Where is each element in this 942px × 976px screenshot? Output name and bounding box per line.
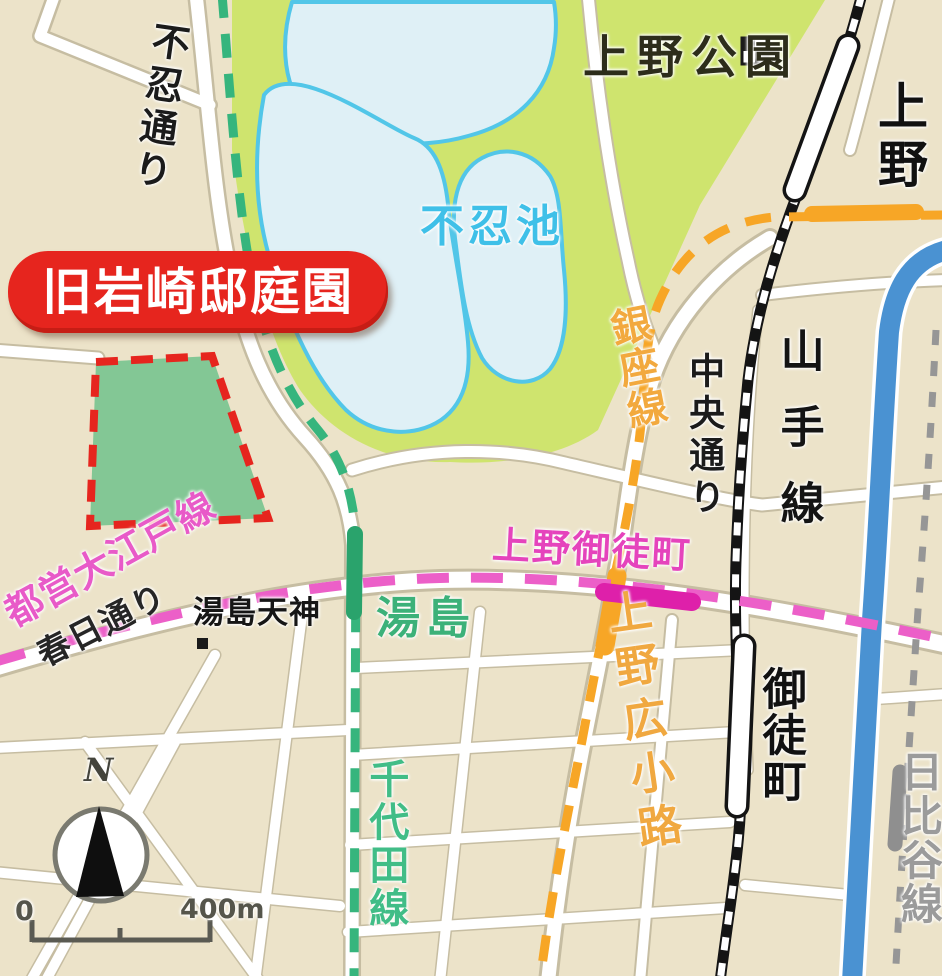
ueno-park-label: 上野公園 — [583, 33, 799, 82]
compass-rose-icon — [55, 806, 147, 901]
chuo-dori-label: 中央通り — [684, 352, 722, 520]
tourist-map: 旧岩崎邸庭園 上野公園 不忍池 不忍通り 中央通り 山手線 上野 御徒町 日比谷… — [0, 0, 942, 976]
compass-north-label: N — [84, 754, 113, 788]
chiyoda-line-label: 千代田線 — [364, 758, 406, 930]
ginza-ueno-station-bar — [812, 212, 916, 214]
ueno-okachimachi-station-label: 上野御徒町 — [491, 525, 693, 576]
yushima-tenjin-label: 湯島天神 — [193, 597, 321, 630]
shrine-square-marker-icon — [197, 638, 208, 649]
hibiya-line-label: 日比谷線 — [896, 750, 941, 926]
scale-distance-label: 400m — [180, 896, 265, 925]
shinobazu-pond-label: 不忍池 — [420, 204, 564, 251]
ueno-station-label: 上野 — [872, 80, 925, 196]
scale-zero-label: 0 — [15, 898, 34, 927]
yushima-station-bar — [354, 534, 355, 612]
garden-title-banner: 旧岩崎邸庭園 — [8, 251, 388, 333]
jr-okachimachi-station-marker — [737, 646, 744, 806]
okachimachi-station-label: 御徒町 — [756, 666, 803, 804]
yushima-station-label: 湯島 — [376, 596, 476, 643]
yamanote-line-label: 山手線 — [774, 328, 821, 556]
